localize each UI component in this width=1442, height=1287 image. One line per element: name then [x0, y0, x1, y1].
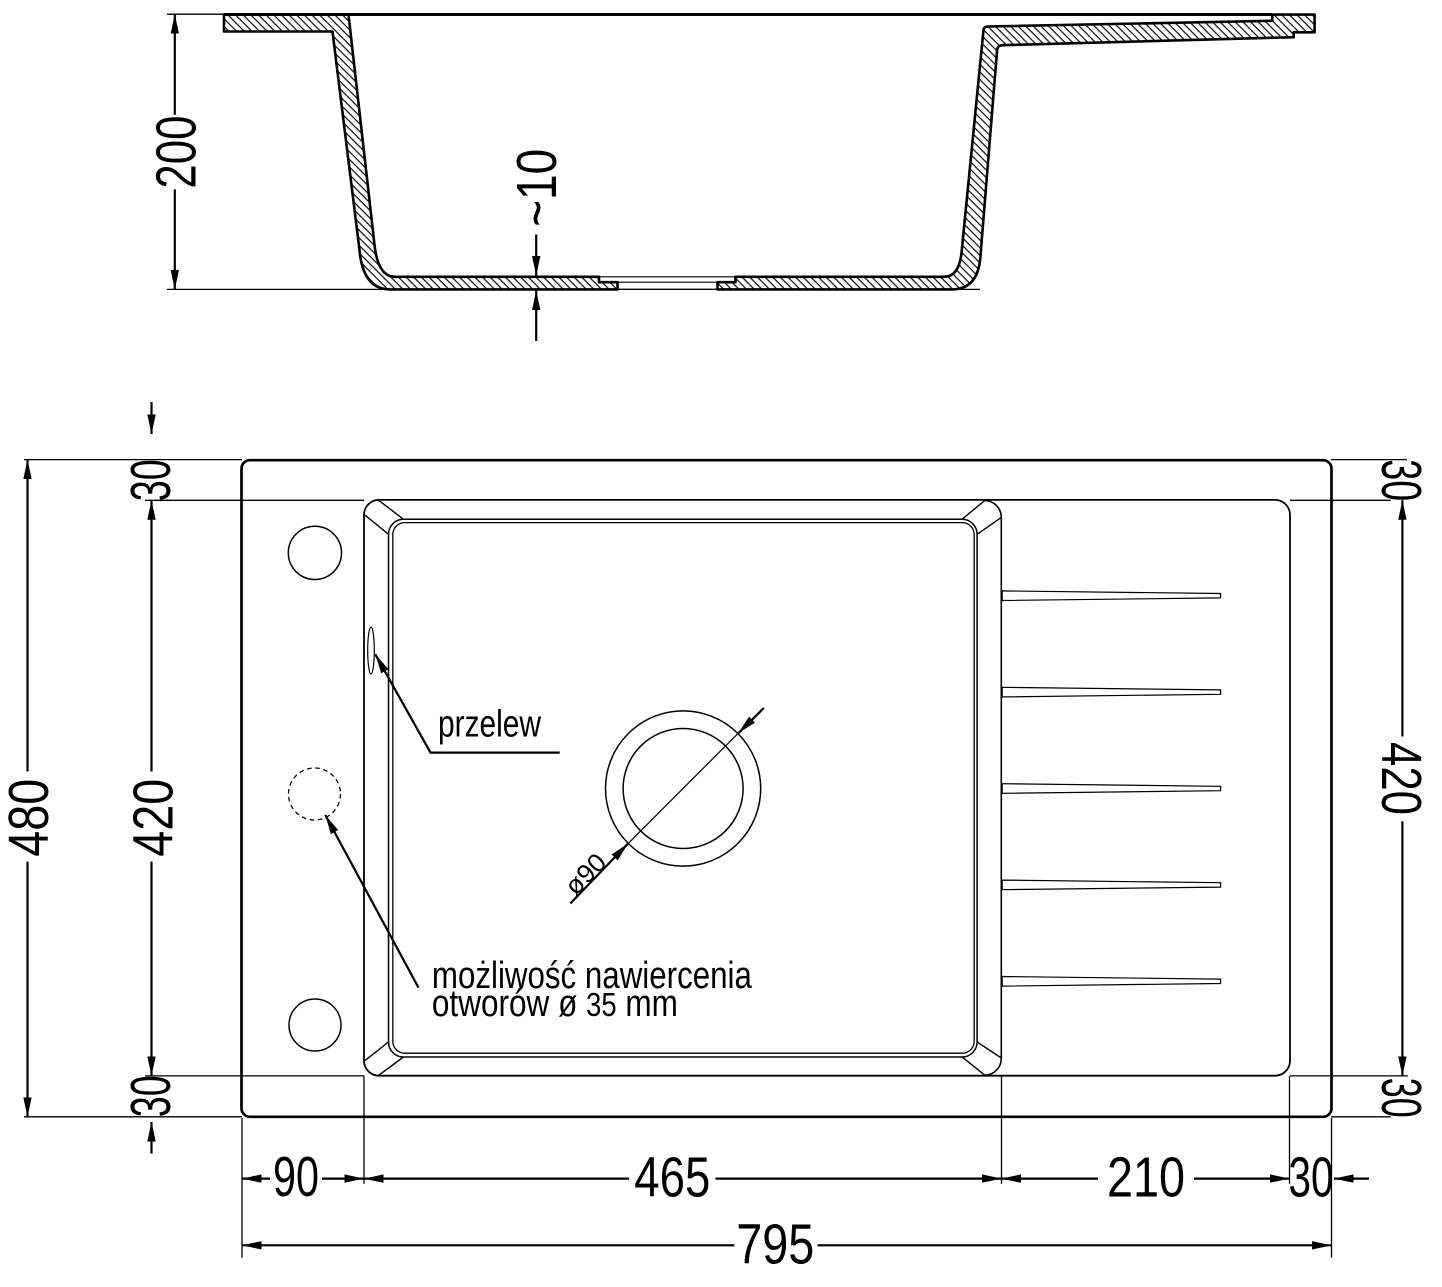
svg-text:30: 30: [119, 1075, 183, 1117]
svg-text:480: 480: [0, 779, 61, 857]
svg-text:30: 30: [119, 459, 183, 501]
svg-text:przelew: przelew: [438, 704, 541, 746]
svg-text:465: 465: [634, 1146, 710, 1210]
svg-text:795: 795: [736, 1212, 814, 1276]
svg-text:210: 210: [1107, 1146, 1185, 1210]
svg-text:420: 420: [1369, 742, 1433, 815]
svg-text:90: 90: [273, 1145, 319, 1209]
svg-text:30: 30: [1369, 459, 1433, 501]
svg-text:30: 30: [1289, 1146, 1334, 1210]
svg-text:30: 30: [1369, 1078, 1433, 1118]
svg-text:200: 200: [144, 116, 208, 189]
svg-text:~10: ~10: [505, 149, 569, 227]
svg-text:otworów ø 35 mm: otworów ø 35 mm: [432, 983, 678, 1025]
svg-text:420: 420: [122, 779, 186, 857]
